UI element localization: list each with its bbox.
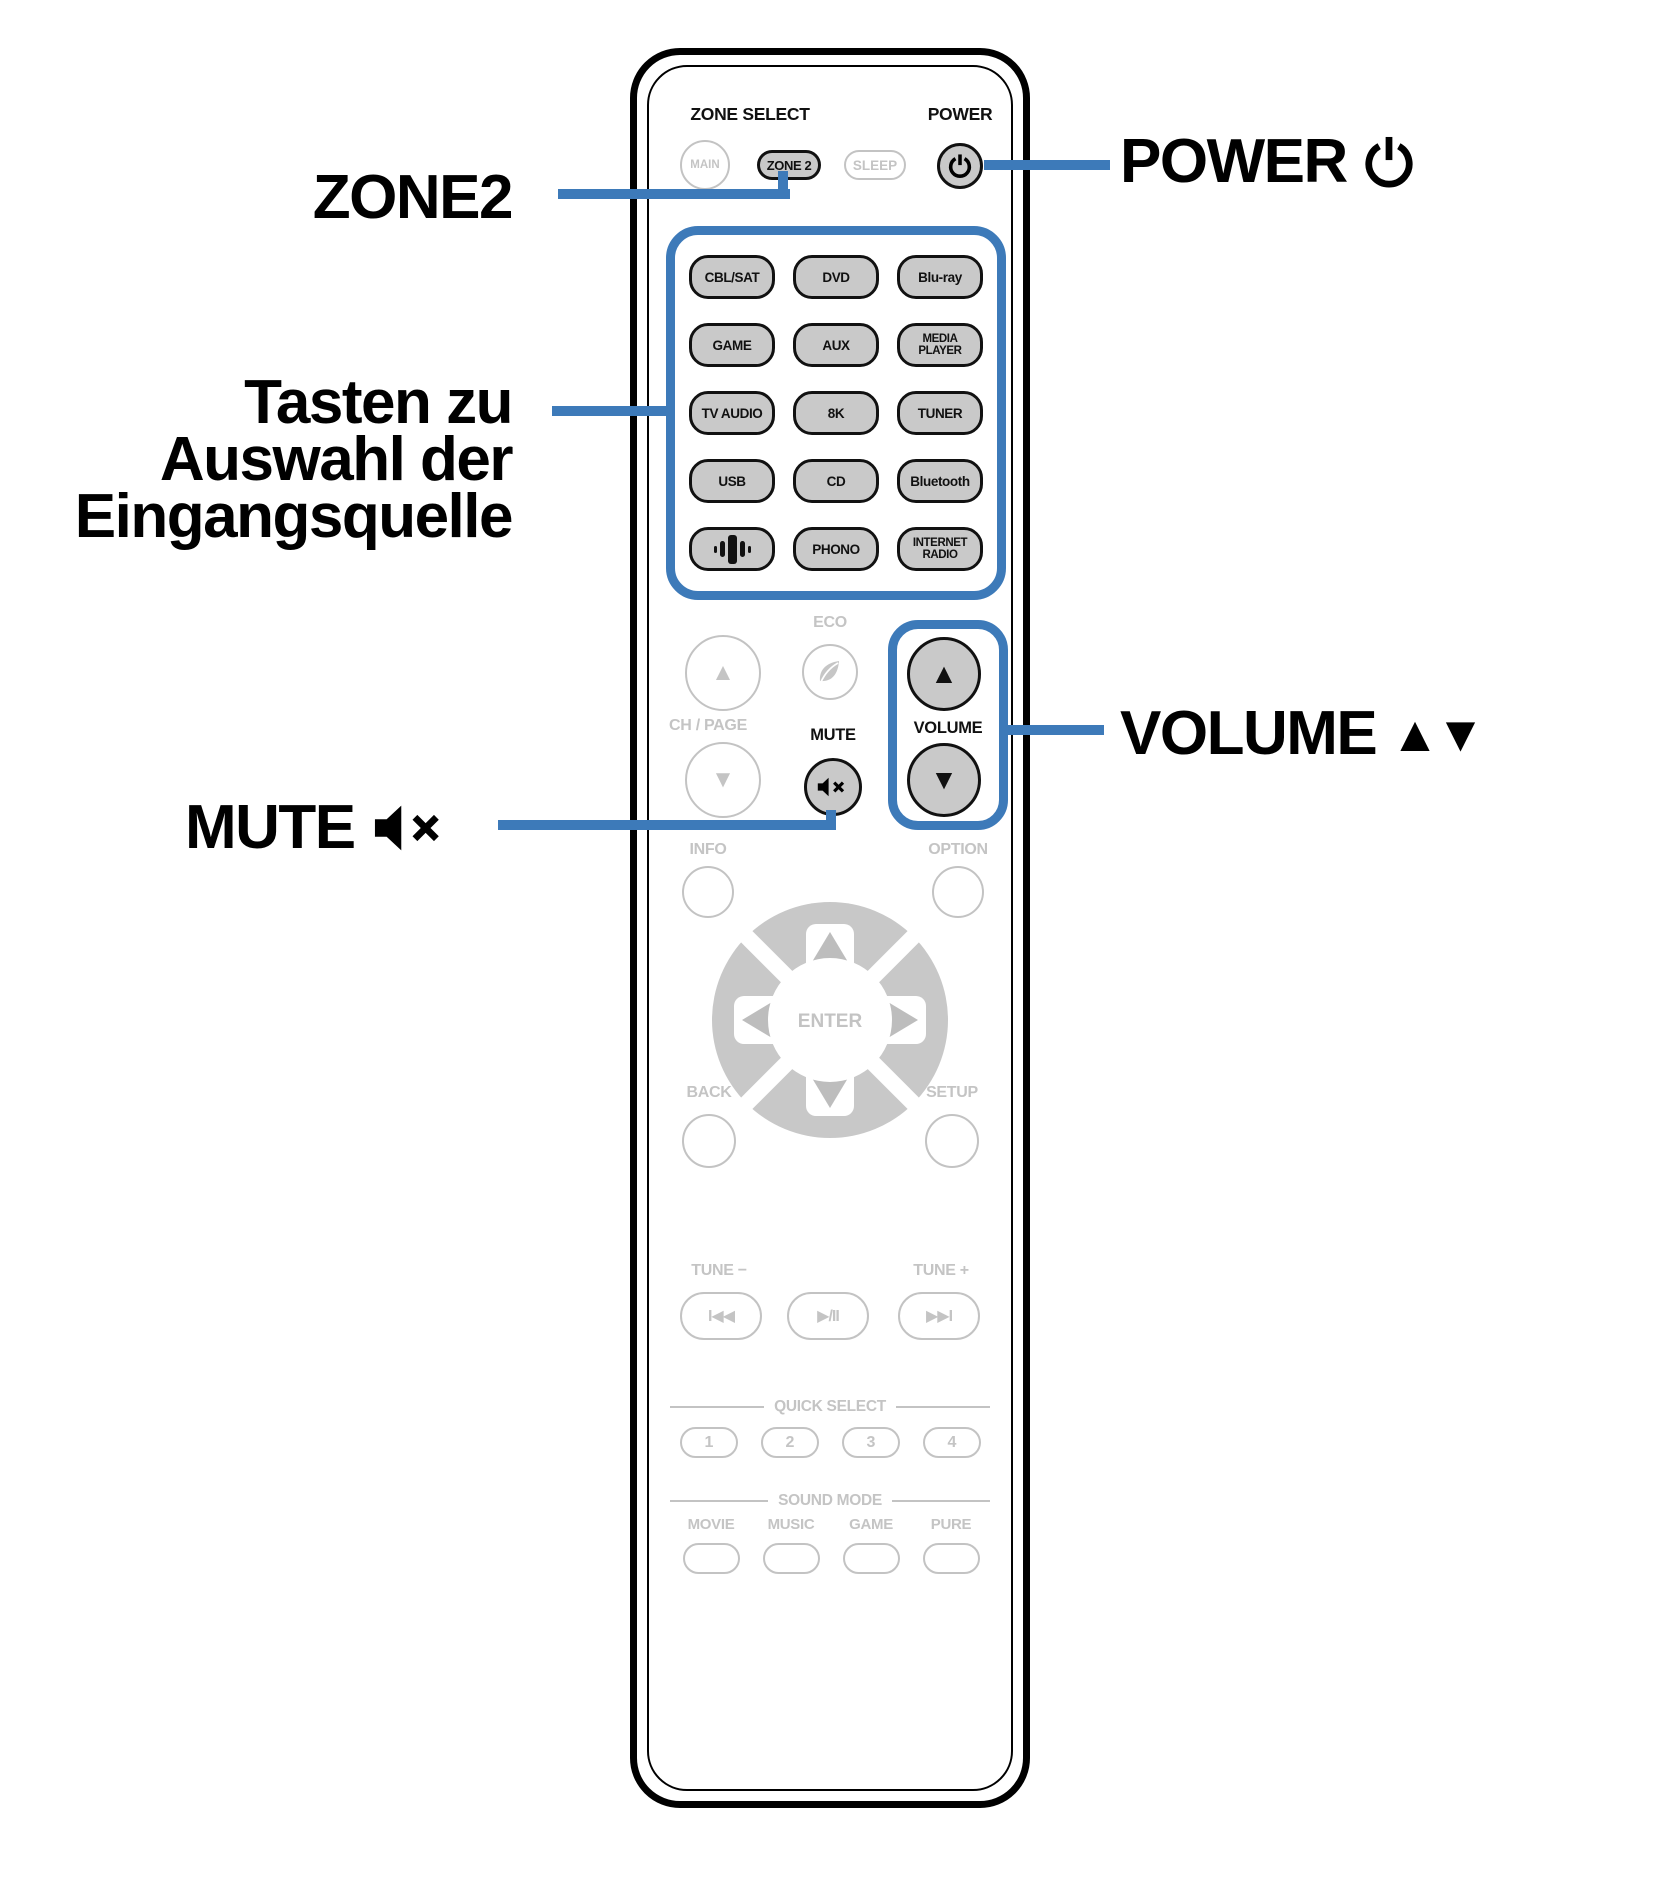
setup-button[interactable] bbox=[925, 1114, 979, 1168]
input-button-dvd[interactable]: DVD bbox=[793, 255, 879, 299]
volume-button-label: VOLUME bbox=[894, 719, 1002, 738]
direction-pad[interactable]: ENTER bbox=[710, 900, 950, 1140]
info-label: INFO bbox=[658, 841, 758, 859]
power-button[interactable] bbox=[937, 143, 983, 189]
volume-up-button[interactable]: ▲ bbox=[907, 637, 981, 711]
callout-line-mute bbox=[498, 820, 836, 830]
input-button-8k[interactable]: 8K bbox=[793, 391, 879, 435]
quick-select-4-button[interactable]: 4 bbox=[923, 1427, 981, 1458]
input-button-media-player[interactable]: MEDIA PLAYER bbox=[897, 323, 983, 367]
callout-input-source-label: Tasten zu Auswahl der Eingangsquelle bbox=[30, 374, 512, 545]
callout-line-zone2 bbox=[558, 189, 790, 199]
tune-minus-label: TUNE − bbox=[669, 1262, 769, 1280]
header-dash bbox=[892, 1500, 990, 1503]
input-button-cd[interactable]: CD bbox=[793, 459, 879, 503]
enter-button: ENTER bbox=[798, 1011, 863, 1032]
volume-down-button[interactable]: ▼ bbox=[907, 743, 981, 817]
input-button-tuner[interactable]: TUNER bbox=[897, 391, 983, 435]
input-button-blu-ray[interactable]: Blu-ray bbox=[897, 255, 983, 299]
eco-label: ECO bbox=[790, 614, 870, 632]
diagram-canvas: ZONE2 POWER Tasten zu Auswahl der Eingan… bbox=[0, 0, 1665, 1878]
input-button-game[interactable]: GAME bbox=[689, 323, 775, 367]
quick-select-header: QUICK SELECT bbox=[670, 1398, 990, 1416]
quick-select-3-button[interactable]: 3 bbox=[842, 1427, 900, 1458]
skip-forward-button[interactable]: ▶▶I bbox=[898, 1292, 980, 1340]
speaker-mute-icon bbox=[817, 776, 849, 798]
sound-mode-music-label: MUSIC bbox=[756, 1516, 826, 1533]
power-icon bbox=[1363, 133, 1415, 191]
mute-button[interactable] bbox=[804, 758, 862, 816]
sound-mode-movie-button[interactable] bbox=[683, 1543, 740, 1574]
speaker-mute-icon bbox=[373, 802, 451, 854]
volume-up-down-arrows: ▲▼ bbox=[1390, 705, 1481, 763]
sound-mode-game-label: GAME bbox=[836, 1516, 906, 1533]
quick-select-label: QUICK SELECT bbox=[774, 1398, 886, 1416]
sound-mode-game-button[interactable] bbox=[843, 1543, 900, 1574]
sound-mode-header: SOUND MODE bbox=[670, 1492, 990, 1510]
setup-label: SETUP bbox=[902, 1084, 1002, 1102]
skip-back-button[interactable]: I◀◀ bbox=[680, 1292, 762, 1340]
heos-bars-icon bbox=[714, 535, 751, 564]
input-source-button-group: CBL/SAT DVD Blu-ray GAME AUX MEDIA PLAYE… bbox=[666, 226, 1006, 600]
ch-page-label: CH / PAGE bbox=[638, 717, 778, 735]
callout-line-zone2-stub bbox=[778, 171, 788, 195]
zone2-button[interactable]: ZONE 2 bbox=[757, 150, 821, 180]
callout-volume-label: VOLUME ▲▼ bbox=[1120, 698, 1481, 769]
input-button-heos[interactable] bbox=[689, 527, 775, 571]
back-label: BACK bbox=[659, 1084, 759, 1102]
zone-select-label: ZONE SELECT bbox=[660, 104, 840, 125]
mute-button-label: MUTE bbox=[783, 726, 883, 745]
down-arrow-icon: ▼ bbox=[711, 766, 735, 794]
input-button-bluetooth[interactable]: Bluetooth bbox=[897, 459, 983, 503]
sleep-button[interactable]: SLEEP bbox=[844, 150, 906, 180]
main-zone-button[interactable]: MAIN bbox=[680, 140, 730, 190]
input-button-internet-radio[interactable]: INTERNET RADIO bbox=[897, 527, 983, 571]
callout-mute-label: MUTE bbox=[185, 792, 451, 863]
down-arrow-icon: ▼ bbox=[930, 764, 958, 796]
header-dash bbox=[670, 1406, 764, 1409]
input-button-tv-audio[interactable]: TV AUDIO bbox=[689, 391, 775, 435]
input-button-aux[interactable]: AUX bbox=[793, 323, 879, 367]
input-button-usb[interactable]: USB bbox=[689, 459, 775, 503]
callout-mute-text: MUTE bbox=[185, 792, 355, 863]
callout-line-mute-stub bbox=[826, 810, 836, 826]
callout-line-power bbox=[984, 160, 1110, 170]
header-dash bbox=[896, 1406, 990, 1409]
sound-mode-pure-label: PURE bbox=[916, 1516, 986, 1533]
quick-select-1-button[interactable]: 1 bbox=[680, 1427, 738, 1458]
up-arrow-icon: ▲ bbox=[930, 658, 958, 690]
callout-volume-text: VOLUME bbox=[1120, 698, 1376, 769]
callout-power-text: POWER bbox=[1120, 126, 1347, 197]
option-label: OPTION bbox=[908, 841, 1008, 859]
header-dash bbox=[670, 1500, 768, 1503]
power-icon bbox=[948, 153, 972, 179]
quick-select-2-button[interactable]: 2 bbox=[761, 1427, 819, 1458]
sound-mode-movie-label: MOVIE bbox=[676, 1516, 746, 1533]
callout-power-label: POWER bbox=[1120, 126, 1415, 197]
channel-page-up-button[interactable]: ▲ bbox=[685, 635, 761, 711]
tune-plus-label: TUNE + bbox=[891, 1262, 991, 1280]
callout-line-volume bbox=[1000, 725, 1104, 735]
back-button[interactable] bbox=[682, 1114, 736, 1168]
callout-line-input-source bbox=[552, 406, 674, 416]
input-button-cbl-sat[interactable]: CBL/SAT bbox=[689, 255, 775, 299]
sound-mode-music-button[interactable] bbox=[763, 1543, 820, 1574]
up-arrow-icon: ▲ bbox=[711, 659, 735, 687]
play-pause-button[interactable]: ▶/II bbox=[787, 1292, 869, 1340]
eco-button[interactable] bbox=[802, 644, 858, 700]
leaf-icon bbox=[815, 657, 845, 687]
channel-page-down-button[interactable]: ▼ bbox=[685, 742, 761, 818]
callout-zone2-label: ZONE2 bbox=[212, 162, 512, 233]
sound-mode-label: SOUND MODE bbox=[778, 1492, 882, 1510]
sound-mode-pure-button[interactable] bbox=[923, 1543, 980, 1574]
input-button-phono[interactable]: PHONO bbox=[793, 527, 879, 571]
power-button-label: POWER bbox=[900, 104, 1020, 125]
